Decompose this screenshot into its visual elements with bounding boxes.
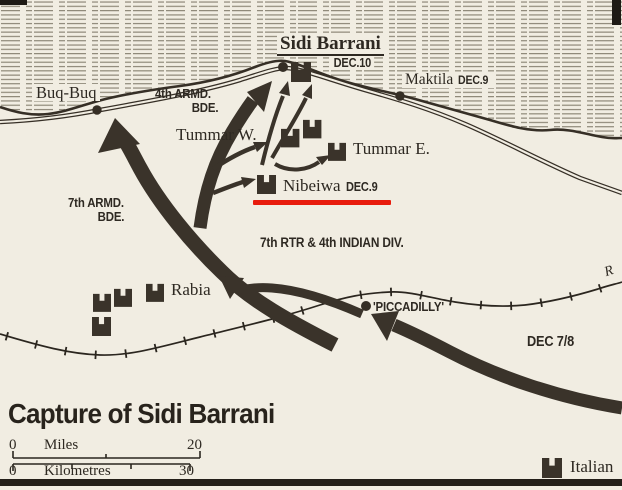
piccadilly-label: 'PICCADILLY': [373, 300, 444, 314]
fort-icon: [114, 289, 132, 307]
maktila-dot: [395, 91, 404, 100]
arrow-to-nibeiwa-head: [241, 177, 256, 188]
kilometres-max: 30: [179, 464, 194, 480]
arrow-to-sidi-left-head: [279, 81, 290, 96]
fort-icon: [542, 458, 562, 478]
fort-icon: [92, 317, 111, 336]
miles-zero: 0: [9, 438, 17, 454]
arrow-to-nibeiwa: [213, 182, 243, 193]
maktila-date: DEC.9: [458, 74, 488, 87]
sidi-barrani-battle-map: Sidi Barrani DEC.10 Maktila DEC.9 Buq-Bu…: [0, 0, 622, 490]
arrow-4th-armoured: [200, 100, 253, 228]
arrow-dec78: [394, 325, 622, 408]
maktila-label: Maktila DEC.9: [402, 72, 496, 88]
unit-7th-armd-bde: 7th ARMD. BDE.: [68, 196, 137, 223]
maktila-name: Maktila: [405, 72, 453, 88]
red-underline-annotation: [253, 200, 391, 205]
unit-7th-armd-line2: BDE.: [68, 210, 137, 224]
kilometres-zero: 0: [9, 464, 17, 480]
piccadilly-dot: [361, 301, 371, 311]
kilometres-label: Kilometres: [44, 464, 111, 480]
legend-italian-label: Italian: [570, 458, 613, 476]
dec78-label: DEC 7/8: [527, 335, 574, 350]
tummar-e-label: Tummar E.: [353, 140, 430, 158]
sidi-barrani-dot: [278, 62, 288, 72]
fort-icon: [303, 120, 321, 138]
fort-icon: [93, 294, 111, 312]
fort-icon: [257, 175, 276, 194]
buq-buq-dot: [92, 105, 101, 114]
map-title: Capture of Sidi Barrani: [8, 399, 274, 428]
unit-7th-armd-line1: 7th ARMD.: [68, 196, 137, 210]
sidi-barrani-label: Sidi Barrani: [277, 34, 384, 56]
bottom-border: [0, 479, 622, 486]
tummar-w-label: Tummar W.: [176, 126, 257, 144]
buq-buq-label: Buq-Buq: [33, 84, 100, 101]
miles-label: Miles: [44, 438, 78, 454]
arrow-tummar-gap: [275, 162, 319, 170]
scan-artifact: [612, 0, 621, 25]
rabia-label: Rabia: [171, 281, 211, 299]
nibeiwa-date: DEC.9: [346, 181, 378, 194]
fort-icon: [328, 143, 346, 161]
nibeiwa-name: Nibeiwa: [283, 177, 341, 195]
fort-icon: [281, 129, 299, 147]
unit-4th-armd-bde: 4th ARMD. BDE.: [155, 87, 224, 114]
nibeiwa-label: Nibeiwa DEC.9: [283, 177, 381, 195]
fort-icon: [146, 284, 164, 302]
sidi-barrani-date: DEC.10: [331, 57, 374, 70]
unit-4th-armd-line1: 4th ARMD.: [155, 87, 224, 101]
unit-4th-armd-line2: BDE.: [155, 101, 224, 115]
arrow-to-sidi-right-head: [302, 84, 312, 99]
unit-7th-rtr-4th-indian: 7th RTR & 4th INDIAN DIV.: [260, 236, 404, 250]
scan-artifact: [0, 0, 27, 5]
miles-max: 20: [187, 438, 202, 454]
